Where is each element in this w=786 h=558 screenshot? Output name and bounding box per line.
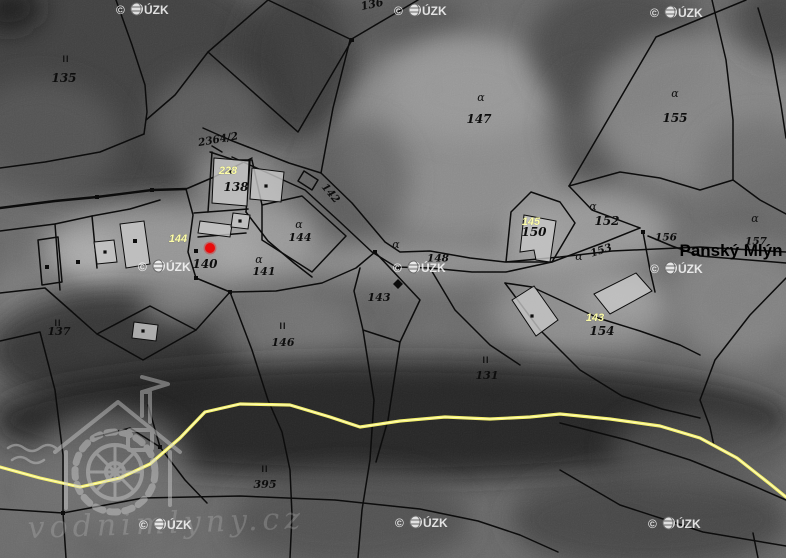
watermark-org-text: ÚZK xyxy=(166,259,191,274)
watermark-org-text: ÚZK xyxy=(676,516,701,531)
parcel-number: 131 xyxy=(476,369,499,382)
parcel-number: 135 xyxy=(51,71,76,85)
boundary-vertex-dot xyxy=(133,239,137,243)
boundary-vertex-dot xyxy=(95,195,99,199)
parcel-number: 146 xyxy=(272,336,295,349)
boundary-vertex-dot xyxy=(158,445,162,449)
boundary-vertex-dot xyxy=(150,188,154,192)
parcel-number-highlighted: 143 xyxy=(586,312,604,324)
land-use-mark: ɑ xyxy=(589,200,597,213)
watermark-org-text: ÚZK xyxy=(423,515,448,530)
parcel-number-highlighted: 144 xyxy=(169,233,187,245)
building-footprint xyxy=(132,322,158,341)
watermark-copyright-text: © xyxy=(139,518,148,532)
parcel-number-highlighted: 228 xyxy=(218,165,238,177)
boundary-vertex-dot xyxy=(76,260,80,264)
land-use-mark: ɑ xyxy=(392,238,400,251)
land-use-mark: ɑ xyxy=(751,212,759,225)
building-point-marker xyxy=(264,184,267,187)
land-use-mark: II xyxy=(62,54,69,64)
boundary-vertex-dot xyxy=(373,250,377,254)
parcel-number: 156 xyxy=(655,232,678,244)
parcel-number: 143 xyxy=(368,291,391,304)
watermark-org-text: ÚZK xyxy=(678,261,703,276)
watermark-org-text: ÚZK xyxy=(422,3,447,18)
parcel-number: 138 xyxy=(223,180,249,194)
parcel-number: 395 xyxy=(254,478,277,491)
watermark-copyright-text: © xyxy=(648,517,657,531)
selected-point-marker[interactable] xyxy=(204,242,217,255)
red-marker-dot[interactable] xyxy=(205,243,215,253)
parcel-number: 144 xyxy=(289,231,312,244)
watermark-copyright-text: © xyxy=(395,516,404,530)
land-use-mark: ɑ xyxy=(671,87,679,100)
building-point-marker xyxy=(103,250,106,253)
watermark-org-text: ÚZK xyxy=(167,517,192,532)
boundary-vertex-dot xyxy=(228,290,232,294)
parcel-number: 150 xyxy=(521,225,547,239)
cadastral-map-viewport[interactable]: vodnimlyny.cz ©ÚZK©ÚZK©ÚZK©ÚZK©ÚZK©ÚZK©Ú… xyxy=(0,0,786,558)
land-use-mark: ɑ xyxy=(295,218,303,231)
parcel-number: 141 xyxy=(253,265,276,278)
parcel-number: 147 xyxy=(466,112,492,126)
watermark-copyright-text: © xyxy=(394,4,403,18)
watermark-copyright-text: © xyxy=(650,262,659,276)
boundary-vertex-dot xyxy=(194,249,198,253)
parcel-number: 140 xyxy=(192,257,218,271)
land-use-mark: ɑ xyxy=(575,250,583,263)
parcel-number: 148 xyxy=(427,253,450,265)
logo-gear-spokes-icon xyxy=(88,445,142,499)
watermark-copyright-text: © xyxy=(650,6,659,20)
watermark-copyright-text: © xyxy=(138,260,147,274)
boundary-vertex-dot xyxy=(45,265,49,269)
boundary-vertex-dot xyxy=(194,276,198,280)
parcel-number: 155 xyxy=(662,111,687,125)
map-canvas: vodnimlyny.cz ©ÚZK©ÚZK©ÚZK©ÚZK©ÚZK©ÚZK©Ú… xyxy=(0,0,786,558)
watermark-org-text: ÚZK xyxy=(678,5,703,20)
parcel-number: 154 xyxy=(589,324,614,338)
land-use-mark: ɑ xyxy=(477,91,485,104)
land-use-mark: II xyxy=(482,355,489,365)
land-use-mark: II xyxy=(54,318,61,328)
watermark-copyright-text: © xyxy=(116,3,125,17)
land-use-mark: II xyxy=(279,321,286,331)
boundary-vertex-dot xyxy=(641,230,645,234)
boundary-vertex-dot xyxy=(350,38,354,42)
land-use-mark: ɑ xyxy=(255,253,263,266)
land-use-mark: II xyxy=(261,464,268,474)
building-point-marker xyxy=(238,219,241,222)
place-name-label: Panský Mlýn xyxy=(680,241,783,260)
watermark-copyright-text: © xyxy=(393,261,402,275)
watermark-org-text: ÚZK xyxy=(144,2,169,17)
building-point-marker xyxy=(141,329,144,332)
building-point-marker xyxy=(530,314,533,317)
parcel-number: 152 xyxy=(594,214,619,228)
